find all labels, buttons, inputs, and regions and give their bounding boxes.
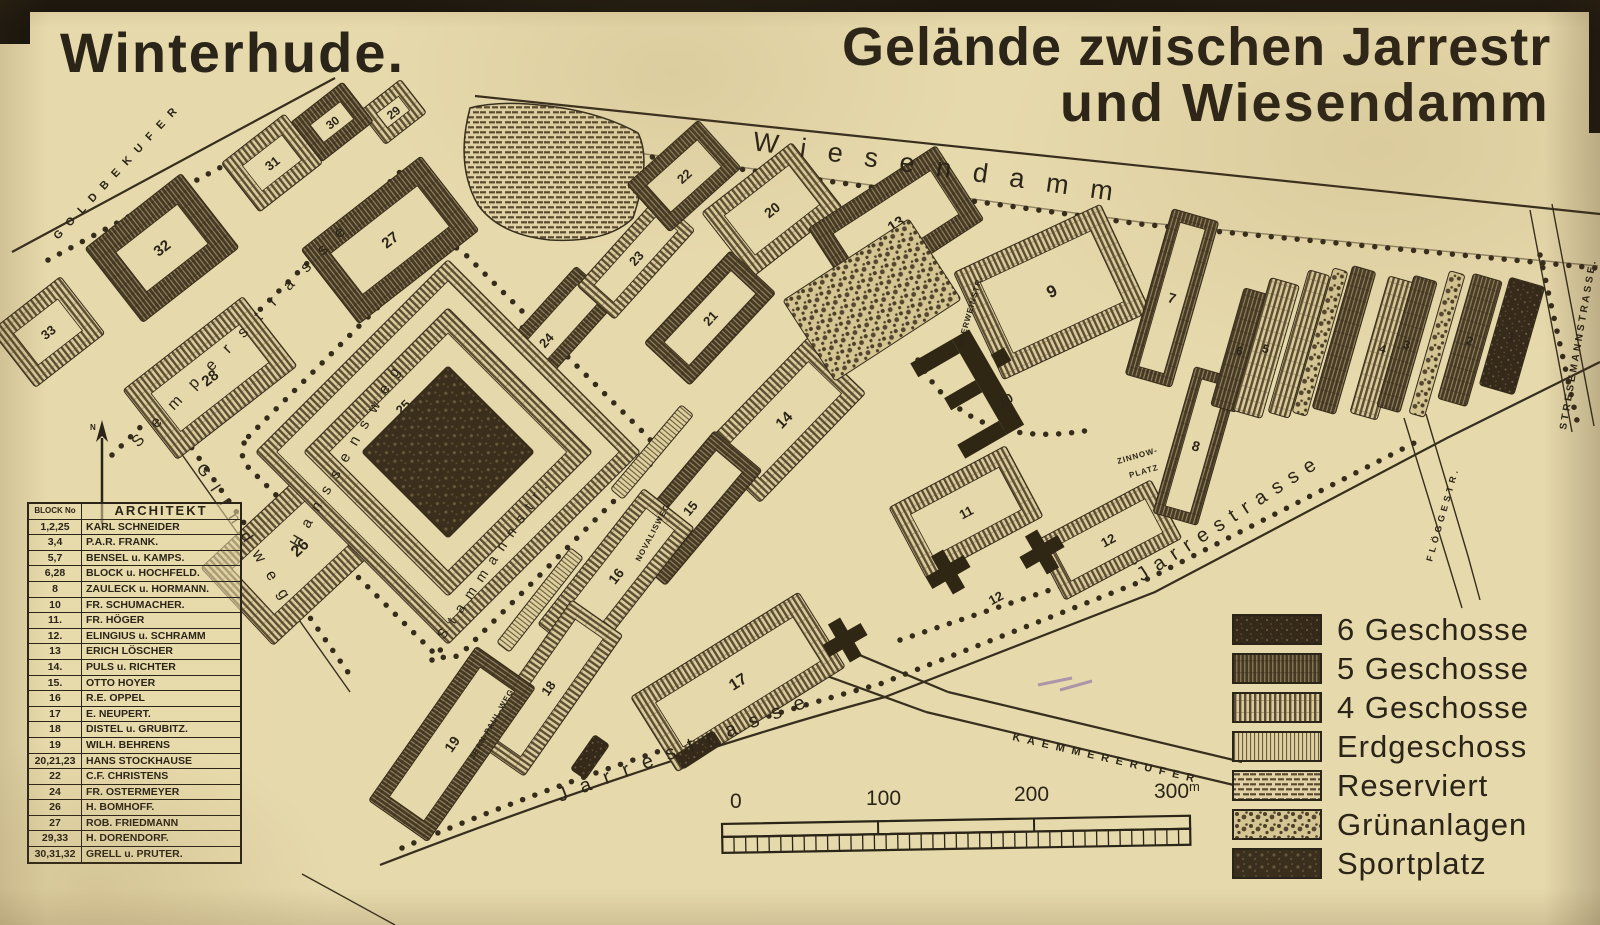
map-block: 11 (889, 446, 1043, 579)
block-numbers: 20,21,23 (28, 753, 82, 769)
architect-name: P.A.R. FRANK. (82, 535, 242, 551)
architect-row: 6,28BLOCK u. HOCHFELD. (28, 566, 241, 582)
architect-name: C.F. CHRISTENS (82, 769, 242, 785)
map-page: Winterhude. Gelände zwischen Jarrestr un… (0, 0, 1600, 925)
legend-label: Reserviert (1337, 768, 1488, 804)
legend-item: 4 Geschosse (1232, 688, 1529, 727)
block-numbers: 10 (28, 597, 82, 613)
street-label-stresemannstrasse: STRESEMANNSTRASSE. (1558, 257, 1599, 430)
block-numbers: 13 (28, 644, 82, 660)
map-title-line2: und Wiesendamm (1060, 72, 1600, 134)
architect-row: 10FR. SCHUMACHER. (28, 597, 241, 613)
legend-swatch-reserviert (1232, 770, 1322, 801)
legend-label: Grünanlagen (1337, 807, 1527, 843)
scale-bar: 0 100 200 300m (722, 779, 1200, 853)
architect-name: R.E. OPPEL (82, 691, 242, 707)
block-number: 12 (986, 588, 1006, 608)
legend-swatch-6-geschosse (1232, 614, 1322, 645)
reserved-area (464, 103, 644, 240)
architect-row: 27ROB. FRIEDMANN (28, 815, 241, 831)
architect-name: DISTEL u. GRUBITZ. (82, 722, 242, 738)
scale-tick-0: 0 (730, 790, 742, 813)
architect-name: ELINGIUS u. SCHRAMM (82, 628, 242, 644)
block-numbers: 27 (28, 815, 82, 831)
block-numbers: 11. (28, 613, 82, 629)
block-numbers: 6,28 (28, 566, 82, 582)
scale-tick-100: 100 (866, 787, 901, 810)
architect-row: 18DISTEL u. GRUBITZ. (28, 722, 241, 738)
page-title: Winterhude. (60, 20, 405, 85)
legend-label: 4 Geschosse (1337, 690, 1529, 726)
architect-name: OTTO HOYER (82, 675, 242, 691)
scale-tick-300: 300m (1154, 779, 1200, 803)
pen-mark (1038, 678, 1092, 690)
photo-edge-top (0, 0, 1600, 12)
block-numbers: 14. (28, 659, 82, 675)
architect-row: 1,2,25KARL SCHNEIDER (28, 519, 241, 535)
architect-row: 16R.E. OPPEL (28, 691, 241, 707)
architect-row: 29,33H. DORENDORF. (28, 831, 241, 847)
architect-name: GRELL u. PRUTER. (82, 847, 242, 863)
legend-swatch-erdgeschoss (1232, 731, 1322, 762)
north-label: N (90, 423, 97, 432)
architect-table-header: BLOCK No ARCHITEKT (28, 503, 241, 519)
architect-name: PULS u. RICHTER (82, 659, 242, 675)
architect-name: FR. OSTERMEYER (82, 784, 242, 800)
architect-row: 3,4P.A.R. FRANK. (28, 535, 241, 551)
architect-row: 8ZAULECK u. HORMANN. (28, 581, 241, 597)
map-title-line1: Gelände zwischen Jarrestr (842, 16, 1600, 78)
legend-swatch-4-geschosse (1232, 692, 1322, 723)
legend-label: Erdgeschoss (1337, 729, 1527, 765)
block-numbers: 19 (28, 737, 82, 753)
architect-row: 11.FR. HÖGER (28, 613, 241, 629)
map-block: 33 (0, 277, 105, 388)
architect-name: BENSEL u. KAMPS. (82, 550, 242, 566)
architect-name: WILH. BEHRENS (82, 737, 242, 753)
architect-name: FR. HÖGER (82, 613, 242, 629)
architect-row: 19WILH. BEHRENS (28, 737, 241, 753)
architect-row: 30,31,32GRELL u. PRUTER. (28, 847, 241, 863)
photo-edge-left (0, 0, 30, 44)
map-block: 32 (85, 173, 239, 322)
map-block: 29 (360, 79, 427, 144)
map-block: 9 (954, 204, 1151, 379)
block-numbers: 29,33 (28, 831, 82, 847)
legend-item: Erdgeschoss (1232, 727, 1529, 766)
block-numbers: 24 (28, 784, 82, 800)
block-numbers: 1,2,25 (28, 519, 82, 535)
architect-name: H. BOMHOFF. (82, 800, 242, 816)
legend-swatch-gruenanlagen (1232, 809, 1322, 840)
block-numbers: 16 (28, 691, 82, 707)
architect-name: HANS STOCKHAUSE (82, 753, 242, 769)
photo-edge-right (1589, 0, 1600, 133)
architect-row: 12.ELINGIUS u. SCHRAMM (28, 628, 241, 644)
block-numbers: 15. (28, 675, 82, 691)
architect-name: E. NEUPERT. (82, 706, 242, 722)
block-numbers: 12. (28, 628, 82, 644)
architect-name: BLOCK u. HOCHFELD. (82, 566, 242, 582)
legend-label: 6 Geschosse (1337, 612, 1529, 648)
block-numbers: 8 (28, 581, 82, 597)
architect-name: ERICH LÖSCHER (82, 644, 242, 660)
legend-item: Grünanlagen (1232, 805, 1529, 844)
legend-item: 6 Geschosse (1232, 610, 1529, 649)
scale-tick-200: 200 (1014, 783, 1049, 806)
architect-row: 22C.F. CHRISTENS (28, 769, 241, 785)
architect-row: 14.PULS u. RICHTER (28, 659, 241, 675)
legend-item: 5 Geschosse (1232, 649, 1529, 688)
architect-row: 24FR. OSTERMEYER (28, 784, 241, 800)
header-architekt: ARCHITEKT (82, 503, 242, 519)
architect-row: 20,21,23HANS STOCKHAUSE (28, 753, 241, 769)
street-label-kaemmererufer: KAEMMERERUFER (1011, 731, 1202, 786)
block-numbers: 17 (28, 706, 82, 722)
legend-item: Sportplatz (1232, 844, 1529, 883)
architect-table: BLOCK No ARCHITEKT 1,2,25KARL SCHNEIDER3… (27, 502, 242, 864)
legend-item: Reserviert (1232, 766, 1529, 805)
architect-row: 26H. BOMHOFF. (28, 800, 241, 816)
map-legend: 6 Geschosse 5 Geschosse 4 Geschosse Erdg… (1232, 610, 1529, 883)
street-label-zinnowplatz-1: ZINNOW- (1116, 446, 1159, 466)
architect-name: ZAULECK u. HORMANN. (82, 581, 242, 597)
legend-label: Sportplatz (1337, 846, 1487, 882)
map-title: Gelände zwischen Jarrestr und Wiesendamm (842, 16, 1600, 134)
architect-name: ROB. FRIEDMANN (82, 815, 242, 831)
architect-row: 13ERICH LÖSCHER (28, 644, 241, 660)
header-block-no: BLOCK No (28, 503, 82, 519)
block-numbers: 5,7 (28, 550, 82, 566)
block-numbers: 26 (28, 800, 82, 816)
street-label-zinnowplatz-2: PLATZ (1128, 463, 1159, 480)
legend-swatch-5-geschosse (1232, 653, 1322, 684)
architect-name: KARL SCHNEIDER (82, 519, 242, 535)
architect-name: H. DORENDORF. (82, 831, 242, 847)
architect-row: 5,7BENSEL u. KAMPS. (28, 550, 241, 566)
block-numbers: 30,31,32 (28, 847, 82, 863)
architect-row: 17E. NEUPERT. (28, 706, 241, 722)
block-numbers: 22 (28, 769, 82, 785)
architect-row: 15.OTTO HOYER (28, 675, 241, 691)
architect-name: FR. SCHUMACHER. (82, 597, 242, 613)
block-numbers: 18 (28, 722, 82, 738)
legend-label: 5 Geschosse (1337, 651, 1529, 687)
legend-swatch-sportplatz (1232, 848, 1322, 879)
block-numbers: 3,4 (28, 535, 82, 551)
